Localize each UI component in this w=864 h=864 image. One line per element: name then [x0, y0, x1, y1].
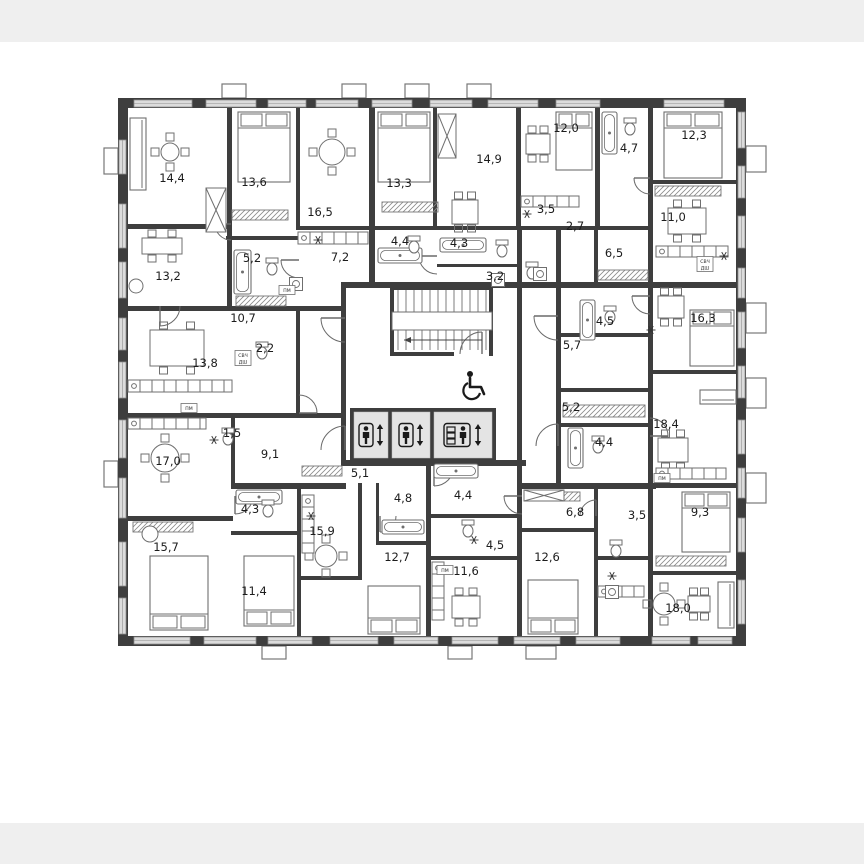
room-area-label: 6,5 [605, 246, 623, 260]
bed [368, 586, 420, 634]
bed [664, 112, 722, 178]
sofa [700, 390, 736, 404]
bed [238, 112, 290, 182]
toilet [266, 258, 278, 275]
room-area-label: 14,4 [159, 171, 185, 185]
room-area-label: 16,3 [690, 311, 716, 325]
kitchen-counter [298, 232, 368, 244]
room-area-label: 4,4 [595, 435, 613, 449]
sofa [718, 582, 734, 628]
room-area-label: 11,4 [241, 584, 267, 598]
svg-text:ПМ: ПМ [441, 568, 448, 574]
room-area-label: 17,0 [155, 454, 181, 468]
armchair [129, 279, 143, 293]
svg-text:ПМ: ПМ [283, 288, 290, 294]
room-area-label: 13,3 [386, 176, 412, 190]
room-area-label: 3,5 [628, 508, 646, 522]
room-area-label: 11,6 [453, 564, 479, 578]
toilet [496, 240, 508, 257]
appliance-label: ПМ [181, 404, 197, 413]
room-area-label: 5,7 [563, 338, 581, 352]
room-area-label: 5,2 [562, 400, 580, 414]
bed [528, 580, 578, 634]
room-area-label: 15,9 [309, 524, 335, 538]
wardrobe [206, 188, 226, 232]
kitchen-counter [128, 418, 206, 429]
passenger-elevator-icon [354, 412, 388, 458]
floor-plan-screenshot: ПМПМПМПМСВЧДШСВЧДШ14,413,616,513,314,912… [0, 0, 864, 864]
bathtub [580, 300, 595, 340]
room-area-label: 12,3 [681, 128, 707, 142]
room-area-label: 4,4 [391, 234, 409, 248]
wardrobe [524, 490, 564, 501]
washing-machine [534, 268, 547, 281]
room-area-label: 2,7 [566, 219, 584, 233]
room-area-label: 5,2 [243, 251, 261, 265]
appliance-label: СВЧДШ [235, 351, 251, 366]
appliance-label: ПМ [279, 286, 295, 295]
room-area-label: 11,0 [660, 210, 686, 224]
room-area-label: 3,5 [537, 202, 555, 216]
room-area-label: 4,8 [394, 491, 412, 505]
kitchen-counter [656, 246, 728, 257]
appliance-label: ПМ [437, 566, 453, 575]
room-area-label: 12,0 [553, 121, 579, 135]
room-area-label: 1,5 [223, 426, 241, 440]
toilet [262, 500, 274, 517]
elevators [354, 412, 492, 458]
appliance-label: СВЧДШ [697, 257, 713, 272]
room-area-label: 13,8 [192, 356, 218, 370]
svg-text:СВЧ: СВЧ [700, 259, 710, 265]
room-area-label: 9,3 [691, 505, 709, 519]
room-area-label: 13,6 [241, 175, 267, 189]
toilet [462, 520, 474, 537]
room-area-label: 14,9 [476, 152, 502, 166]
cargo-elevator-icon [434, 412, 492, 458]
room-area-label: 4,4 [454, 488, 472, 502]
toilet [624, 118, 636, 135]
bed [682, 492, 730, 552]
room-area-label: 4,3 [450, 236, 468, 250]
room-area-label: 7,2 [331, 250, 349, 264]
bathtub [434, 464, 478, 478]
room-area-label: 18,0 [665, 601, 691, 615]
svg-text:ДШ: ДШ [701, 266, 710, 272]
room-area-label: 12,7 [384, 550, 410, 564]
bathtub [568, 428, 583, 468]
room-area-label: 12,6 [534, 550, 560, 564]
room-area-label: 2,2 [256, 341, 274, 355]
room-area-label: 16,5 [307, 205, 333, 219]
room-area-label: 4,5 [486, 538, 504, 552]
toilet [610, 540, 622, 557]
room-area-label: 4,3 [241, 502, 259, 516]
kitchen-counter [128, 380, 232, 392]
bathtub [602, 112, 617, 154]
room-area-label: 4,7 [620, 141, 638, 155]
floor-plan: ПМПМПМПМСВЧДШСВЧДШ14,413,616,513,314,912… [0, 0, 864, 864]
svg-text:СВЧ: СВЧ [238, 353, 248, 359]
room-area-label: 15,7 [153, 540, 179, 554]
kitchen-counter [598, 586, 644, 597]
room-area-label: 3,2 [486, 269, 504, 283]
svg-text:ПМ: ПМ [658, 476, 665, 482]
room-area-label: 4,5 [596, 314, 614, 328]
svg-text:ПМ: ПМ [185, 406, 192, 412]
room-area-label: 13,2 [155, 269, 181, 283]
washing-machine [606, 586, 619, 599]
room-area-label: 10,7 [230, 311, 256, 325]
wardrobe [438, 114, 456, 158]
room-area-label: 6,8 [566, 505, 584, 519]
toilet [408, 236, 420, 253]
passenger-elevator-icon [392, 412, 430, 458]
room-area-label: 5,1 [351, 466, 369, 480]
svg-text:ДШ: ДШ [239, 360, 248, 366]
bathtub [382, 520, 424, 534]
bed [150, 556, 208, 630]
sofa [130, 118, 146, 190]
appliance-label: ПМ [654, 474, 670, 483]
room-area-label: 18,4 [653, 417, 679, 431]
bed [378, 112, 430, 182]
room-area-label: 9,1 [261, 447, 279, 461]
